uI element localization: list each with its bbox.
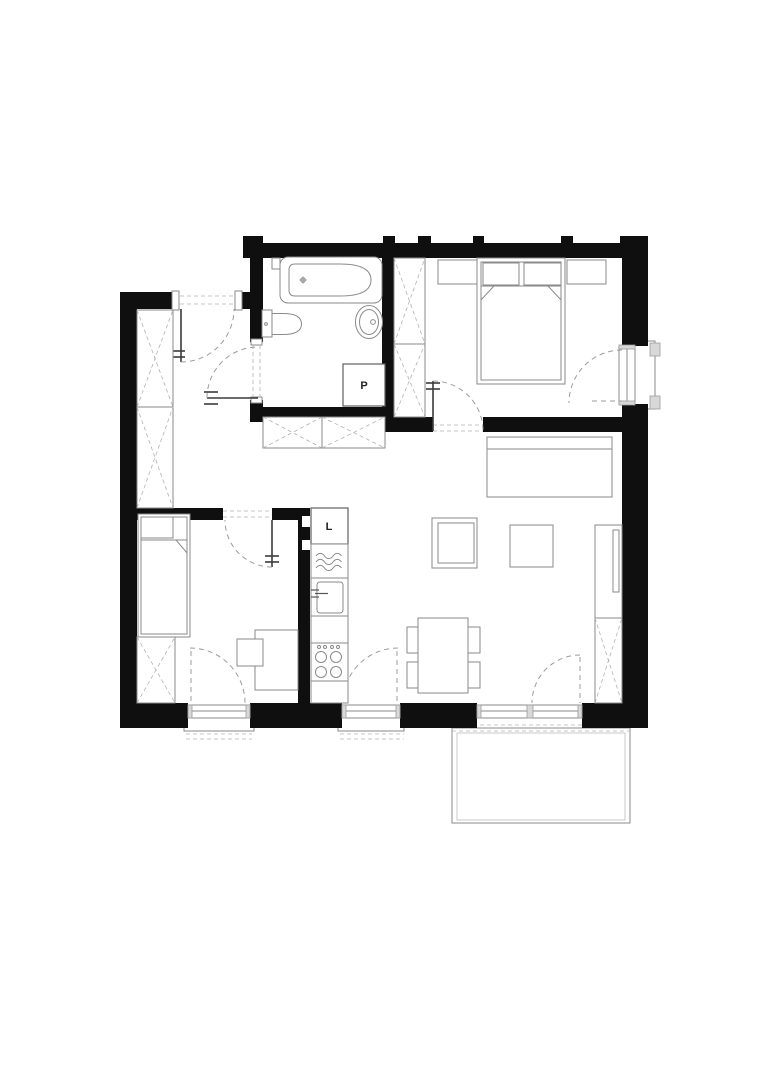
wall-bedroom1-south-left — [382, 417, 433, 432]
desk-chair — [237, 639, 263, 666]
window-bedroom2-cap-r — [246, 705, 250, 718]
dining-table — [418, 618, 468, 693]
bed-single-pillow — [141, 517, 173, 538]
bath-door-swing-arc — [207, 347, 258, 398]
balcony-door-swing-arc — [532, 655, 580, 703]
fridge-label: L — [326, 521, 333, 533]
armchair — [510, 525, 553, 567]
exterior-stub-bottom — [650, 396, 660, 409]
window-kitchen-cap-l — [342, 705, 346, 718]
wall-bedroom1-south-right — [483, 417, 648, 432]
bedroom1-wardrobe-upper — [394, 258, 425, 344]
floor-plan-page: PL — [0, 0, 777, 1080]
wall-bath-west-upper — [250, 243, 263, 342]
window-kitchen-casement-arc — [343, 648, 398, 703]
window-bedroom1-cap-b — [619, 401, 635, 405]
balcony-door-cap-l — [477, 705, 481, 718]
wall-stub-6 — [620, 236, 648, 244]
entry-door-jamb-right — [235, 291, 242, 310]
nightstand-left — [438, 260, 477, 284]
bedroom1-door-swing-arc — [433, 381, 483, 431]
wall-stub-1 — [243, 236, 263, 244]
bedroom1-wardrobe-lower — [394, 344, 425, 417]
bedroom2-door-swing-arc — [225, 520, 272, 567]
bed-double-pillow-right — [524, 263, 561, 285]
window-sill-kitchen — [338, 718, 404, 731]
living-wardrobe — [595, 618, 622, 703]
coffee-table — [432, 518, 477, 568]
entry-door-jamb-left — [172, 291, 179, 310]
wall-bedroom2-east — [298, 508, 310, 703]
wall-stub-2 — [383, 236, 395, 244]
wall-bottom-1 — [120, 703, 188, 728]
kitchen-counter-1 — [311, 616, 348, 643]
nightstand-right — [567, 260, 606, 284]
wall-bottom-3 — [400, 703, 477, 728]
window-kitchen-cap-r — [396, 705, 400, 718]
hall-cabinet-1 — [263, 417, 322, 448]
washing-machine-label: P — [360, 380, 367, 392]
wall-hall-top-left — [120, 292, 172, 309]
toilet-bowl — [272, 314, 302, 335]
bath-door-jamb-top — [251, 339, 262, 345]
kitchen-counter-2 — [311, 681, 348, 703]
wall-right-upper — [622, 243, 648, 346]
bed-double-pillow-left — [483, 263, 519, 285]
wall-notch-2 — [302, 540, 311, 550]
wall-top — [243, 243, 648, 258]
hall-cabinet-2 — [322, 417, 385, 448]
balcony-door-cap-r — [578, 705, 582, 718]
wall-bottom-2 — [250, 703, 342, 728]
exterior-stub-top — [650, 343, 660, 356]
window-sill-bedroom2 — [184, 718, 254, 731]
bathtub-tap — [272, 258, 280, 269]
balcony-inner-line — [457, 733, 625, 820]
wall-stub-5 — [561, 236, 573, 244]
wall-stub-3 — [418, 236, 431, 244]
hall-wardrobe-lower — [137, 407, 173, 508]
wall-left — [120, 292, 137, 728]
balcony-outline — [452, 728, 630, 823]
wall-bottom-4 — [582, 703, 648, 728]
bedroom2-wardrobe — [137, 637, 175, 703]
hall-wardrobe-upper — [137, 310, 173, 407]
floor-plan: PL — [0, 0, 777, 1080]
bedroom1-wardrobe-lower-box — [394, 344, 425, 417]
wall-right-lower — [622, 404, 648, 728]
window-bedroom1-casement-arc — [569, 350, 622, 403]
balcony-door-divider — [527, 705, 533, 718]
tv-cabinet — [595, 525, 622, 618]
wall-notch-1 — [302, 516, 311, 527]
wall-stub-4 — [473, 236, 484, 244]
window-bedroom1-cap-t — [619, 345, 635, 349]
entry-door-swing-arc — [181, 309, 234, 362]
sofa — [487, 437, 612, 497]
window-bedroom2-cap-l — [188, 705, 192, 718]
